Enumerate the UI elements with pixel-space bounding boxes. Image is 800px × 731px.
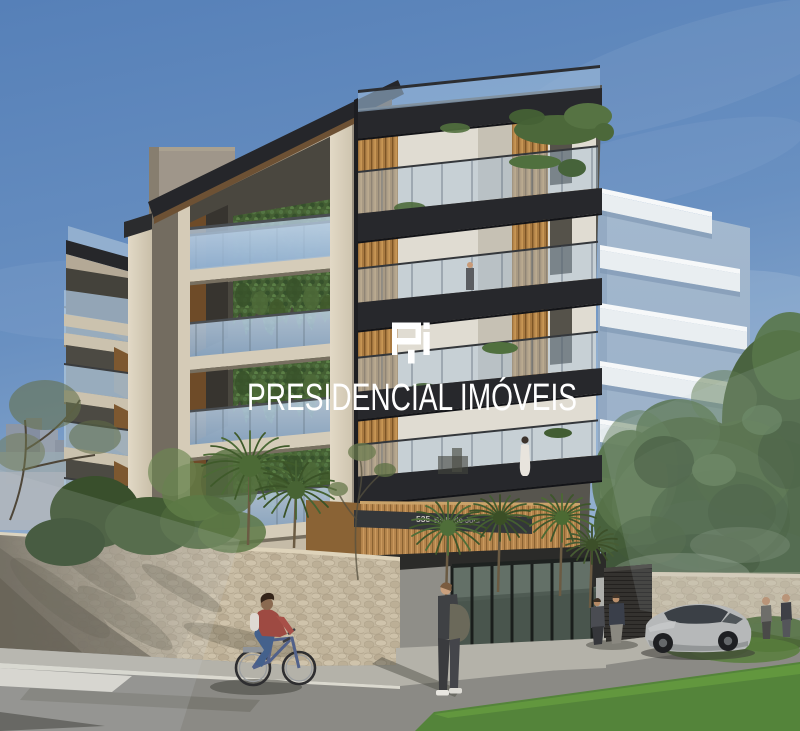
svg-text:PRESIDENCIAL IMÓVEIS: PRESIDENCIAL IMÓVEIS xyxy=(247,376,577,419)
